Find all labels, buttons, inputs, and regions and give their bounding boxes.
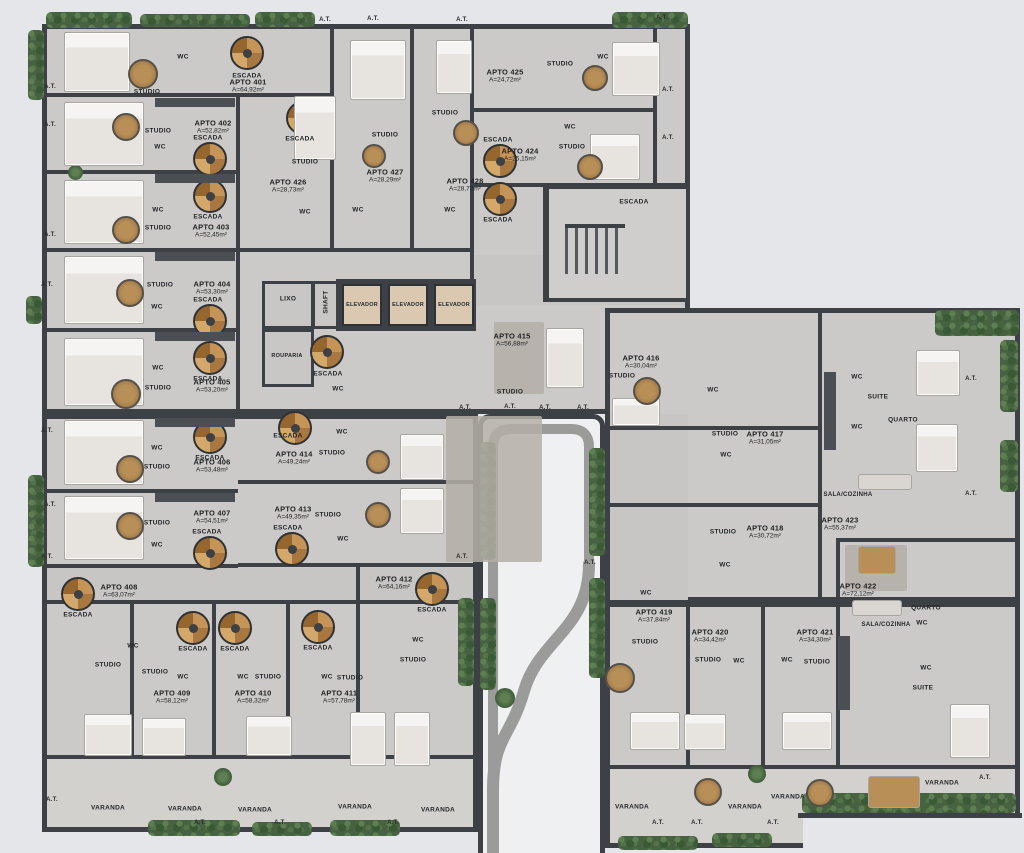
label-at: A.T.	[767, 820, 779, 826]
floor-plan: ELEVADOR ELEVADOR ELEVADOR	[0, 0, 1024, 853]
apartment-label-409: APTO 409A=58,12m²	[154, 689, 191, 706]
room-label-escada: ESCADA	[417, 607, 446, 614]
apartment-label-426: APTO 426A=28,73m²	[270, 178, 307, 195]
apartment-label-425: APTO 425A=24,72m²	[487, 68, 524, 85]
label-at: A.T.	[456, 554, 468, 560]
room-label-wc: WC	[177, 54, 188, 61]
room-label-studio: STUDIO	[497, 389, 523, 396]
room-label-studio: STUDIO	[144, 520, 170, 527]
room-label-wc: WC	[720, 452, 731, 459]
apartment-area: A=64,92m²	[230, 87, 267, 95]
apartment-area: A=57,78m²	[321, 698, 357, 706]
label-at: A.T.	[662, 87, 674, 93]
room-label-escada: ESCADA	[232, 73, 261, 80]
room-label-varanda: VARANDA	[168, 806, 202, 813]
room-label-escada: ESCADA	[220, 646, 249, 653]
label-at: A.T.	[656, 15, 668, 21]
kitchen-counter	[824, 372, 836, 450]
wall	[212, 602, 216, 757]
bed	[246, 716, 292, 756]
room-label-escada: ESCADA	[192, 529, 221, 536]
room-label-escada: ESCADA	[313, 371, 342, 378]
room-label-escada: ESCADA	[63, 612, 92, 619]
plant	[748, 765, 766, 783]
apartment-number: APTO 421	[797, 628, 834, 637]
spiral-stair	[218, 611, 252, 645]
apartment-number: APTO 410	[235, 689, 272, 698]
label-at: A.T.	[44, 502, 56, 508]
room-label-studio: STUDIO	[400, 657, 426, 664]
kitchen-counter	[155, 252, 235, 261]
spiral-stair	[278, 411, 312, 445]
room-label-escada: ESCADA	[619, 199, 648, 206]
room-label-escada: ESCADA	[193, 376, 222, 383]
elevator-2: ELEVADOR	[388, 284, 428, 326]
apartment-label-421: APTO 421A=34,30m²	[797, 628, 834, 645]
apartment-area: A=53,20m²	[194, 387, 231, 395]
room-label-wc: WC	[640, 590, 651, 597]
room-label-wc: WC	[412, 637, 423, 644]
sofa	[852, 600, 902, 616]
apartment-area: A=63,07m²	[101, 592, 138, 600]
room-label-varanda: VARANDA	[615, 804, 649, 811]
room-label-wc: WC	[321, 674, 332, 681]
label-at: A.T.	[504, 404, 516, 410]
dining-table	[111, 379, 141, 409]
spiral-stair	[193, 179, 227, 213]
hedge	[712, 833, 772, 847]
wall	[761, 602, 765, 767]
dining-table	[365, 502, 391, 528]
apartment-number: APTO 427	[367, 168, 404, 177]
room-label-wc: WC	[154, 144, 165, 151]
plant	[68, 165, 83, 180]
wall	[818, 313, 822, 602]
label-at: A.T.	[652, 820, 664, 826]
room-label-varanda: VARANDA	[91, 805, 125, 812]
label-at: A.T.	[274, 820, 286, 826]
wall	[42, 248, 470, 252]
room-label-studio: STUDIO	[337, 675, 363, 682]
dining-table	[366, 450, 390, 474]
room-label-suite: SUITE	[868, 394, 889, 401]
room-label-studio: STUDIO	[609, 373, 635, 380]
spiral-stair	[230, 36, 264, 70]
room-label-studio: STUDIO	[145, 385, 171, 392]
label-at: A.T.	[979, 775, 991, 781]
bed	[350, 712, 386, 766]
room-label-studio: STUDIO	[145, 128, 171, 135]
rug	[446, 416, 542, 562]
apartment-label-417: APTO 417A=31,05m²	[747, 430, 784, 447]
apartment-number: APTO 408	[101, 583, 138, 592]
room-label-rouparia: ROUPARIA	[271, 353, 302, 359]
label-at: A.T.	[965, 491, 977, 497]
wall	[238, 480, 478, 484]
room-label-quarto: QUARTO	[888, 417, 918, 424]
spiral-stair	[275, 532, 309, 566]
apartment-number: APTO 407	[194, 509, 231, 518]
room-label-wc: WC	[337, 536, 348, 543]
label-at: A.T.	[41, 428, 53, 434]
bed	[546, 328, 584, 388]
dining-table	[112, 113, 140, 141]
apartment-number: APTO 412	[376, 575, 413, 584]
planter	[589, 448, 605, 556]
planter	[480, 598, 496, 690]
apartment-label-412: APTO 412A=64,16m²	[376, 575, 413, 592]
varanda-table	[806, 779, 834, 807]
apartment-number: APTO 415	[494, 332, 531, 341]
room-label-wc: WC	[237, 674, 248, 681]
room-label-lixo: LIXO	[280, 296, 296, 303]
room-label-wc: WC	[151, 542, 162, 549]
apartment-area: A=56,88m²	[494, 341, 531, 349]
kitchen-counter	[155, 174, 235, 183]
bed	[630, 712, 680, 750]
apartment-area: A=34,42m²	[692, 637, 729, 645]
room-label-escada: ESCADA	[303, 645, 332, 652]
label-at: A.T.	[691, 820, 703, 826]
bed	[436, 40, 472, 94]
apartment-label-403: APTO 403A=52,45m²	[193, 223, 230, 240]
room-label-escada: ESCADA	[285, 136, 314, 143]
room-label-suite: SUITE	[913, 685, 934, 692]
dining-table	[116, 512, 144, 540]
apartment-area: A=58,12m²	[154, 698, 191, 706]
room-label-varanda: VARANDA	[925, 780, 959, 787]
label-at: A.T.	[41, 554, 53, 560]
room-label-studio: STUDIO	[632, 639, 658, 646]
room-label-escada: ESCADA	[273, 433, 302, 440]
room-label-wc: WC	[444, 207, 455, 214]
bed	[350, 40, 406, 100]
apartment-label-415: APTO 415A=56,88m²	[494, 332, 531, 349]
apartment-number: APTO 420	[692, 628, 729, 637]
room-label-wc: WC	[336, 429, 347, 436]
wall	[42, 93, 330, 97]
dining-table	[116, 279, 144, 307]
kitchen-counter	[838, 636, 850, 710]
label-at: A.T.	[459, 405, 471, 411]
room-label-wc: WC	[733, 658, 744, 665]
dining-table	[362, 144, 386, 168]
bed	[916, 350, 960, 396]
hedge	[46, 12, 132, 28]
room-label-wc: WC	[177, 674, 188, 681]
elevator-1: ELEVADOR	[342, 284, 382, 326]
apartment-area: A=28,73m²	[270, 187, 307, 195]
apartment-area: A=30,04m²	[623, 363, 660, 371]
room-label-shaft: SHAFT	[323, 290, 330, 313]
room-label-escada: ESCADA	[483, 217, 512, 224]
hedge	[140, 14, 250, 27]
room-label-wc: WC	[781, 657, 792, 664]
varanda-table	[605, 663, 635, 693]
spiral-stair	[193, 341, 227, 375]
dining-table	[116, 455, 144, 483]
room-label-studio: STUDIO	[147, 282, 173, 289]
label-at: A.T.	[577, 405, 589, 411]
apartment-area: A=52,45m²	[193, 232, 230, 240]
room-label-quarto: QUARTO	[911, 605, 941, 612]
hedge	[1000, 440, 1018, 492]
label-at: A.T.	[46, 797, 58, 803]
apartment-label-424: APTO 424A=25,15m²	[502, 147, 539, 164]
apartment-number: APTO 426	[270, 178, 307, 187]
varanda-table	[694, 778, 722, 806]
room-label-studio: STUDIO	[547, 61, 573, 68]
label-at: A.T.	[44, 232, 56, 238]
room-label-wc: WC	[127, 643, 138, 650]
dining-table	[858, 546, 896, 574]
hedge	[1000, 340, 1018, 412]
apartment-area: A=53,30m²	[194, 289, 231, 297]
label-at: A.T.	[44, 84, 56, 90]
room-label-escada: ESCADA	[193, 297, 222, 304]
kitchen-counter	[155, 332, 235, 341]
dining-table	[577, 154, 603, 180]
room-label-varanda: VARANDA	[238, 807, 272, 814]
apartment-area: A=31,05m²	[747, 439, 784, 447]
apartment-label-420: APTO 420A=34,42m²	[692, 628, 729, 645]
apartment-label-411: APTO 411A=57,78m²	[321, 689, 357, 706]
bed	[916, 424, 958, 472]
label-at: A.T.	[584, 560, 596, 566]
hedge	[935, 310, 1019, 336]
room-label-varanda: VARANDA	[338, 804, 372, 811]
apartment-number: APTO 416	[623, 354, 660, 363]
apartment-area: A=58,32m²	[235, 698, 272, 706]
room-label-studio: STUDIO	[372, 132, 398, 139]
room-label-wc: WC	[152, 365, 163, 372]
label-at: A.T.	[367, 16, 379, 22]
room-label-wc: WC	[299, 209, 310, 216]
bed	[400, 434, 444, 480]
hedge	[26, 296, 42, 324]
label-at: A.T.	[41, 282, 53, 288]
background-cut	[803, 818, 1024, 853]
room-label-studio: STUDIO	[695, 657, 721, 664]
apartment-number: APTO 403	[193, 223, 230, 232]
kitchen-counter	[155, 98, 235, 107]
apartment-label-428: APTO 428A=28,73m²	[447, 177, 484, 194]
room-label-studio: STUDIO	[315, 512, 341, 519]
apartment-area: A=24,72m²	[487, 77, 524, 85]
apartment-area: A=72,12m²	[840, 591, 877, 599]
apartment-number: APTO 418	[747, 524, 784, 533]
bed	[84, 714, 132, 756]
label-at: A.T.	[539, 405, 551, 411]
bed	[294, 96, 336, 160]
bed	[400, 488, 444, 534]
room-label-wc: WC	[597, 54, 608, 61]
bed	[684, 714, 726, 750]
stair-rail	[565, 224, 625, 228]
apartment-label-423: APTO 423A=55,37m²	[822, 516, 859, 533]
hedge	[28, 30, 44, 100]
apartment-label-410: APTO 410A=58,32m²	[235, 689, 272, 706]
apartment-number: APTO 419	[636, 608, 673, 617]
spiral-stair	[61, 577, 95, 611]
room-label-wc: WC	[851, 374, 862, 381]
bed	[612, 42, 660, 96]
room-label-wc: WC	[564, 124, 575, 131]
varanda-strip-left	[47, 757, 473, 827]
hedge	[612, 12, 688, 28]
wall	[42, 600, 478, 604]
label-at: A.T.	[44, 122, 56, 128]
wall	[838, 538, 1020, 542]
room-label-escada: ESCADA	[178, 646, 207, 653]
trash-room	[262, 281, 314, 329]
planter	[589, 578, 605, 678]
spiral-stair	[415, 572, 449, 606]
wall	[610, 765, 1020, 769]
apartment-area: A=30,72m²	[747, 533, 784, 541]
apartment-label-427: APTO 427A=28,29m²	[367, 168, 404, 185]
spiral-stair	[310, 335, 344, 369]
apartment-label-401: APTO 401A=64,92m²	[230, 78, 267, 95]
room-label-escada: ESCADA	[193, 135, 222, 142]
bed	[142, 718, 186, 756]
sofa	[858, 474, 912, 490]
apartment-area: A=25,15m²	[502, 156, 539, 164]
elevator-3: ELEVADOR	[434, 284, 474, 326]
room-label-studio: STUDIO	[432, 110, 458, 117]
spiral-stair	[193, 142, 227, 176]
wall	[610, 503, 820, 507]
dining-table	[453, 120, 479, 146]
dining-table	[582, 65, 608, 91]
room-label-varanda: VARANDA	[728, 804, 762, 811]
apartment-area: A=28,29m²	[367, 177, 404, 185]
elevator-label: ELEVADOR	[346, 302, 378, 308]
room-label-wc: WC	[332, 386, 343, 393]
plant	[214, 768, 232, 786]
apartment-area: A=53,48m²	[194, 467, 231, 475]
room-label-escada: ESCADA	[195, 455, 224, 462]
room-label-wc: WC	[916, 620, 927, 627]
bed	[64, 32, 130, 92]
kitchen-counter	[155, 418, 235, 427]
room-label-wc: WC	[851, 424, 862, 431]
bed	[782, 712, 832, 750]
room-label-studio: STUDIO	[255, 674, 281, 681]
label-at: A.T.	[387, 820, 399, 826]
room-label-escada: ESCADA	[273, 525, 302, 532]
room-label-wc: WC	[352, 207, 363, 214]
hedge	[255, 12, 315, 27]
room-label-wc: WC	[920, 665, 931, 672]
apartment-number: APTO 428	[447, 177, 484, 186]
room-label-escada: ESCADA	[483, 137, 512, 144]
bed	[394, 712, 430, 766]
apartment-area: A=28,73m²	[447, 186, 484, 194]
apartment-label-419: APTO 419A=37,84m²	[636, 608, 673, 625]
room-label-wc: WC	[152, 207, 163, 214]
apartment-number: APTO 424	[502, 147, 539, 156]
apartment-area: A=55,37m²	[822, 525, 859, 533]
dining-table	[128, 59, 158, 89]
dining-table	[112, 216, 140, 244]
room-label-wc: WC	[151, 445, 162, 452]
apartment-label-416: APTO 416A=30,04m²	[623, 354, 660, 371]
wall	[470, 108, 655, 112]
apartment-label-404: APTO 404A=53,30m²	[194, 280, 231, 297]
planter	[458, 598, 474, 686]
room-label-studio: STUDIO	[804, 659, 830, 666]
label-at: A.T.	[319, 17, 331, 23]
dining-table	[633, 377, 661, 405]
spiral-stair	[193, 536, 227, 570]
elevator-label: ELEVADOR	[438, 302, 470, 308]
room-label-studio: STUDIO	[95, 662, 121, 669]
label-at: A.T.	[194, 820, 206, 826]
room-label-studio: STUDIO	[142, 669, 168, 676]
apartment-number: APTO 425	[487, 68, 524, 77]
apartment-number: APTO 423	[822, 516, 859, 525]
varanda-dining-table	[868, 776, 920, 808]
spiral-stair	[176, 611, 210, 645]
kitchen-counter	[155, 493, 235, 502]
bed	[950, 704, 990, 758]
apartment-number: APTO 422	[840, 582, 877, 591]
room-label-studio: STUDIO	[559, 144, 585, 151]
wall	[236, 96, 240, 414]
wall	[410, 24, 414, 250]
apartment-area: A=64,16m²	[376, 584, 413, 592]
stair-treads	[565, 228, 625, 274]
elevator-label: ELEVADOR	[392, 302, 424, 308]
apartment-number: APTO 417	[747, 430, 784, 439]
apartment-number: APTO 402	[195, 119, 232, 128]
room-label-varanda: VARANDA	[771, 794, 805, 801]
apartment-label-414: APTO 414A=49,24m²	[276, 450, 313, 467]
room-label-studio: STUDIO	[134, 89, 160, 96]
room-label-wc: WC	[719, 562, 730, 569]
room-label-wc: WC	[151, 304, 162, 311]
apartment-label-422: APTO 422A=72,12m²	[840, 582, 877, 599]
apartment-number: APTO 413	[275, 505, 312, 514]
plant	[495, 688, 515, 708]
room-label-wc: WC	[707, 387, 718, 394]
wall	[610, 426, 820, 430]
apartment-label-402: APTO 402A=52,82m²	[195, 119, 232, 136]
label-at: A.T.	[965, 376, 977, 382]
hedge	[618, 836, 698, 850]
apartment-label-407: APTO 407A=54,51m²	[194, 509, 231, 526]
apartment-area: A=54,51m²	[194, 518, 231, 526]
apartment-label-418: APTO 418A=30,72m²	[747, 524, 784, 541]
apartment-label-408: APTO 408A=63,07m²	[101, 583, 138, 600]
apartment-number: APTO 414	[276, 450, 313, 459]
label-at: A.T.	[456, 17, 468, 23]
spiral-stair	[301, 610, 335, 644]
room-label-studio: STUDIO	[712, 431, 738, 438]
room-label-studio: STUDIO	[292, 159, 318, 166]
spiral-stair	[483, 182, 517, 216]
apartment-number: APTO 404	[194, 280, 231, 289]
room-label-studio: STUDIO	[145, 225, 171, 232]
apartment-label-413: APTO 413A=49,35m²	[275, 505, 312, 522]
room-label-escada: ESCADA	[193, 214, 222, 221]
room-label-sala-cozinha: SALA/COZINHA	[862, 622, 911, 628]
room-label-studio: STUDIO	[144, 464, 170, 471]
label-at: A.T.	[662, 135, 674, 141]
corridor-right	[610, 414, 688, 600]
room-label-sala-cozinha: SALA/COZINHA	[824, 492, 873, 498]
